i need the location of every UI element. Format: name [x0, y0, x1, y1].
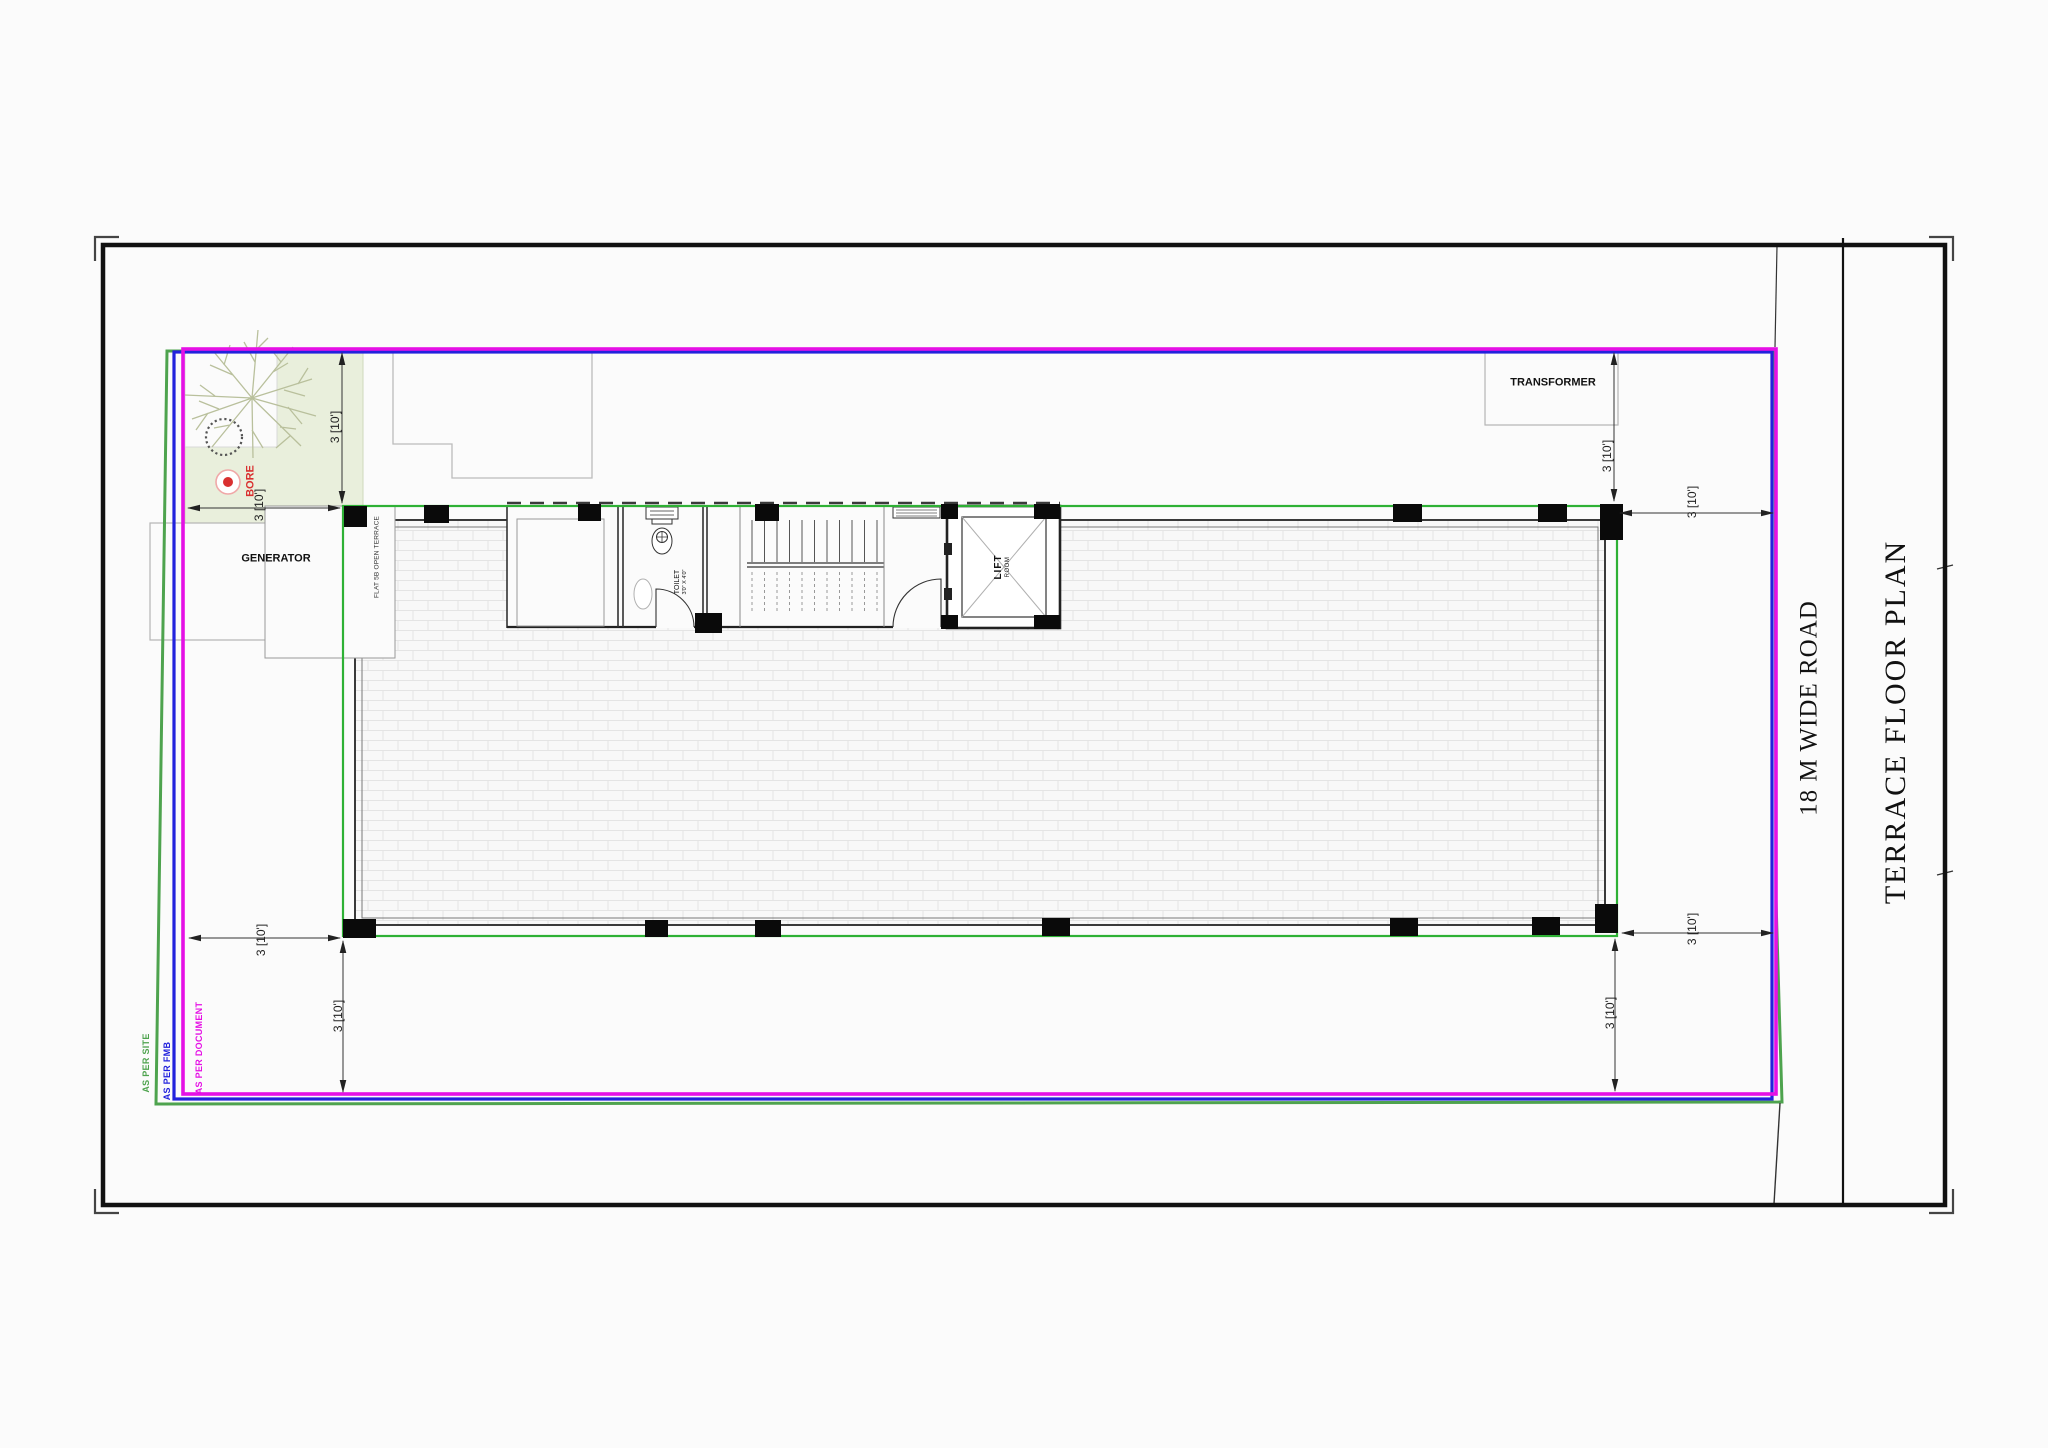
tree-pit — [185, 349, 277, 447]
page-title: TERRACE FLOOR PLAN — [1879, 540, 1914, 904]
dim-setback-top-left-v: 3 [10'] — [329, 411, 343, 443]
terrace-floor-plan-sheet: TERRACE FLOOR PLAN 18 M WIDE ROAD TRANSF… — [0, 0, 2048, 1448]
service-block — [507, 503, 1060, 628]
lower-floor-projection-outline — [393, 349, 592, 478]
lift-name: LIFT — [993, 554, 1005, 579]
toilet-name: TOILET — [674, 570, 682, 595]
legend-as-per-document: AS PER DOCUMENT — [194, 1002, 204, 1095]
toilet-size: 3'0" X 4'0" — [682, 570, 688, 595]
dim-setback-bottom-left-v: 3 [10'] — [332, 1000, 346, 1032]
washbasin-icon — [634, 579, 652, 609]
dim-setback-right-top-h: 3 [10'] — [1686, 486, 1700, 518]
dim-setback-right-bottom-h: 3 [10'] — [1686, 913, 1700, 945]
dim-setback-left-bottom-h: 3 [10'] — [255, 924, 269, 956]
transformer-label: TRANSFORMER — [1510, 377, 1596, 390]
dim-setback-bottom-right-v: 3 [10'] — [1604, 997, 1618, 1029]
generator-label: GENERATOR — [241, 553, 310, 566]
road-label: 18 M WIDE ROAD — [1796, 600, 1825, 816]
legend-as-per-site: AS PER SITE — [141, 1033, 151, 1092]
lift-sub: ROOM — [1004, 554, 1011, 579]
legend-as-per-fmb: AS PER FMB — [162, 1042, 172, 1101]
dim-setback-top-right-v: 3 [10'] — [1601, 440, 1615, 472]
lift-room-label: LIFT ROOM — [993, 554, 1011, 579]
flat-5b-terrace-label: FLAT 5B OPEN TERRACE — [373, 516, 380, 598]
toilet-label: TOILET 3'0" X 4'0" — [674, 570, 688, 595]
dim-setback-left-top-h: 3 [10'] — [253, 489, 267, 521]
floor-plan-drawing — [0, 0, 2048, 1448]
bore-well-icon — [216, 470, 240, 494]
